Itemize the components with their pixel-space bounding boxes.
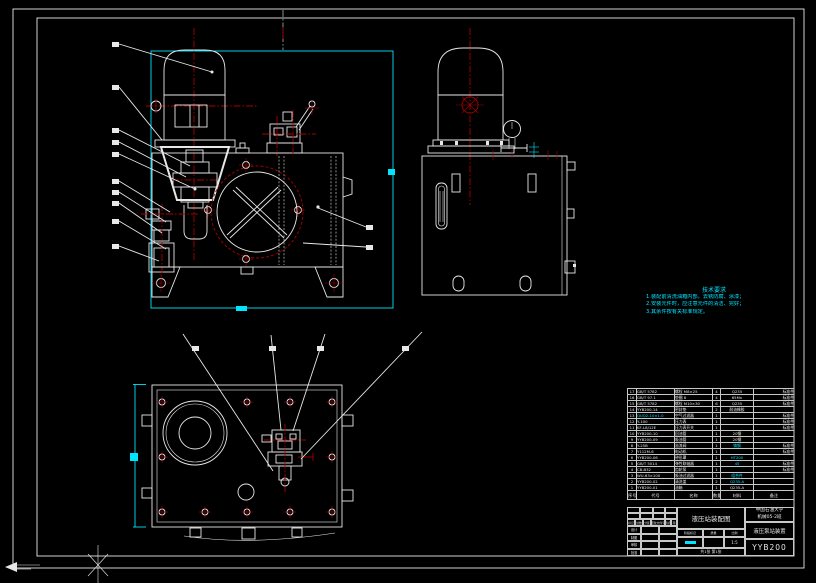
sign-name <box>641 541 659 549</box>
cad-drawing-sheet: 技术要求 1.装配前清洗油箱内部，去锈防腐、涂漆； 2.安装元件时，应注意元件的… <box>0 0 816 583</box>
sign-name <box>641 549 659 557</box>
bom-rows: 17GB/T 5782螺栓 M8×254Q235标准件16GB/T 97.1垫圈… <box>628 389 795 491</box>
stage-label: 阶段标记 <box>677 529 703 537</box>
weight-value <box>703 537 724 548</box>
fold-mark <box>88 545 108 583</box>
sign-label: 设计 <box>627 526 641 534</box>
side-view <box>422 28 576 295</box>
tech-requirement-item: 3.其余件按有关标准规定。 <box>646 309 782 316</box>
sheet-count: 共1张 第1张 <box>677 548 745 556</box>
dimension-line[interactable] <box>130 384 146 527</box>
tank-side <box>422 150 576 295</box>
sign-date <box>659 526 677 534</box>
relief-valve-assembly <box>262 101 319 156</box>
tank-legs <box>152 267 343 297</box>
front-view <box>112 28 395 311</box>
sign-name <box>641 534 659 542</box>
bom-table: 17GB/T 5782螺栓 M8×254Q235标准件16GB/T 97.1垫圈… <box>627 388 794 507</box>
stage-mark-highlight <box>685 541 696 545</box>
bom-header: 数量 <box>713 491 721 500</box>
sign-label: 批准 <box>627 549 641 557</box>
bottom-fittings <box>184 528 335 540</box>
sign-date <box>659 541 677 549</box>
bom-header: 代号 <box>637 491 675 500</box>
sign-label: 审核 <box>627 541 641 549</box>
change-label: 标记 <box>627 519 635 526</box>
top-view <box>130 332 422 540</box>
sign-name <box>641 526 659 534</box>
change-label: 分区 <box>643 519 651 526</box>
drawing-title: 液压站装配图 <box>677 507 745 529</box>
change-label: 处数 <box>635 519 643 526</box>
grip-handle[interactable] <box>388 169 395 175</box>
bom-and-title-block: 17GB/T 5782螺栓 M8×254Q235标准件16GB/T 97.1垫圈… <box>627 388 794 556</box>
organization: 中国石油大学 机械05-2班 <box>745 507 794 522</box>
motor-front <box>151 50 235 147</box>
tech-requirements: 技术要求 1.装配前清洗油箱内部，去锈防腐、涂漆； 2.安装元件时，应注意元件的… <box>646 287 782 316</box>
bom-header: 序号 <box>628 491 637 500</box>
scale-label: 比例 <box>724 529 745 537</box>
balloon-leaders-top <box>183 332 422 471</box>
bom-header: 材料 <box>721 491 754 500</box>
drain-hole <box>238 484 254 500</box>
drawing-number: YYB200 <box>745 539 794 556</box>
stage-value <box>677 537 703 548</box>
sign-date <box>659 549 677 557</box>
tech-requirements-title: 技术要求 <box>646 287 782 294</box>
bom-header: 备注 <box>754 491 795 500</box>
weight-label: 质量 <box>703 529 724 537</box>
scale-value: 1:5 <box>724 537 745 548</box>
grip-handle[interactable] <box>236 306 247 311</box>
change-label: 更改文件号 <box>651 519 665 526</box>
sign-date <box>659 534 677 542</box>
ucs-arrow-icon <box>5 562 40 572</box>
valve-block-top <box>262 424 313 492</box>
motor-side <box>428 48 514 153</box>
bom-header-row: 序号 代号 名称 数量 材料 备注 <box>628 491 795 500</box>
bom-header: 名称 <box>675 491 713 500</box>
tech-requirement-item: 2.安装元件时，应注意元件的清洁、完好； <box>646 301 782 308</box>
motor-mount-hole <box>163 401 227 465</box>
balloon-leaders-right <box>303 205 373 250</box>
title-block: 标记 处数 分区 更改文件号 签名 年月日 设计 制图 审核 批准 液压站装配图… <box>627 507 794 556</box>
product-name: 液压泵站装置 <box>745 522 794 539</box>
selection-box[interactable] <box>151 51 393 308</box>
suction-filter <box>141 204 200 276</box>
sign-label: 制图 <box>627 534 641 542</box>
org-line2: 机械05-2班 <box>757 515 781 522</box>
tech-requirement-item: 1.装配前清洗油箱内部，去锈防腐、涂漆； <box>646 294 782 301</box>
